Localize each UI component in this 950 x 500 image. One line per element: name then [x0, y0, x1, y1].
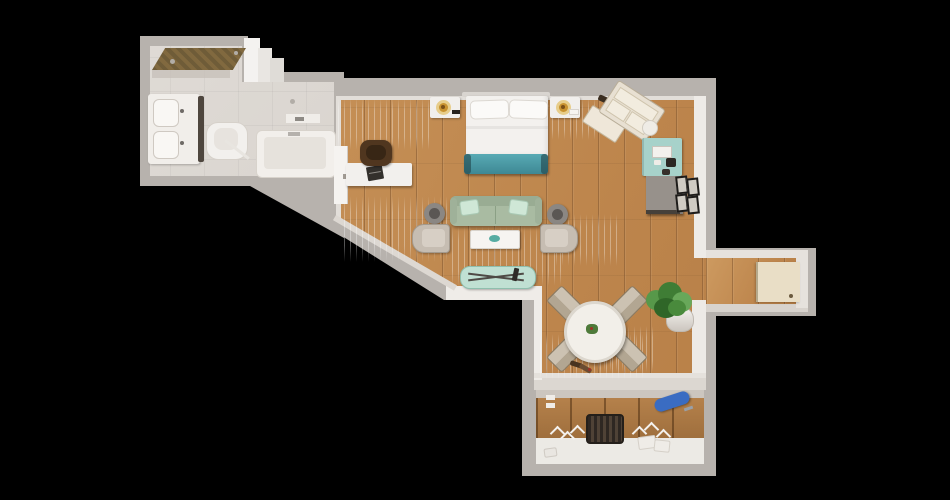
faucet [180, 141, 184, 145]
sofa-arm [535, 198, 542, 224]
phone [452, 110, 460, 114]
fridge-base [646, 210, 680, 214]
ceiling-light [170, 59, 175, 64]
wire-basket [586, 414, 624, 444]
coffee-maker [652, 146, 672, 158]
bathtub-basin [264, 137, 326, 169]
sofa-cushion [459, 199, 480, 216]
bench-arm [464, 154, 471, 174]
shower-ceiling [152, 48, 246, 70]
lamp-finial [561, 105, 565, 109]
ceiling-light [290, 99, 295, 104]
wall-face-dining-bottom [534, 373, 706, 378]
sink-basin [153, 99, 179, 127]
laptop [366, 165, 384, 182]
side-table-top [552, 209, 563, 220]
armchair-seat [422, 229, 445, 247]
cup [654, 160, 661, 165]
wall-step [270, 58, 284, 82]
wall-face-dining-left [534, 286, 542, 380]
kettle [666, 158, 676, 167]
bathtub-faucet [288, 132, 300, 136]
ceiling-light [234, 51, 238, 55]
door-handle [789, 294, 793, 298]
entry-wall-top [706, 250, 808, 258]
pillow [509, 99, 549, 119]
towel [295, 117, 304, 121]
wall-hook [546, 395, 555, 400]
faucet [180, 109, 184, 113]
side-table-top [429, 208, 440, 219]
step-stool [653, 439, 670, 453]
floor-plan-stage [0, 0, 950, 500]
leaf [668, 300, 686, 316]
closet-dividing-wall [534, 378, 706, 390]
pouf [642, 120, 658, 136]
bench-arm [541, 154, 548, 174]
lamp-finial [441, 105, 445, 109]
notepad [569, 109, 579, 115]
decor-bowl [489, 235, 500, 242]
armchair-left [412, 224, 450, 253]
table-centerpiece [586, 324, 598, 334]
shoe-accent [588, 368, 591, 371]
armchair-seat [545, 229, 568, 247]
shower-shadow [152, 70, 230, 78]
duvet-fold [466, 126, 548, 129]
mug [662, 169, 670, 175]
wall-hook [546, 403, 555, 408]
entry-door-leaf [756, 262, 800, 302]
sofa-arm [450, 198, 457, 224]
wall-face-right-lower [692, 300, 706, 378]
armchair-right [540, 224, 578, 253]
desk-chair-seat [366, 145, 386, 160]
entry-wall-bottom [706, 304, 808, 312]
sofa-seat-split [495, 206, 496, 224]
sink-basin [153, 131, 179, 159]
sofa-cushion [508, 199, 529, 216]
vanity-side-panel [198, 96, 204, 162]
wall-frame [686, 177, 700, 196]
pillow [470, 99, 510, 119]
plant-foliage [646, 282, 694, 318]
centerpiece-berry [590, 327, 593, 330]
laptop-hinge [369, 171, 381, 174]
bed-end-bench [464, 154, 548, 174]
tissue-box [543, 447, 557, 458]
wall-frame [686, 195, 700, 214]
